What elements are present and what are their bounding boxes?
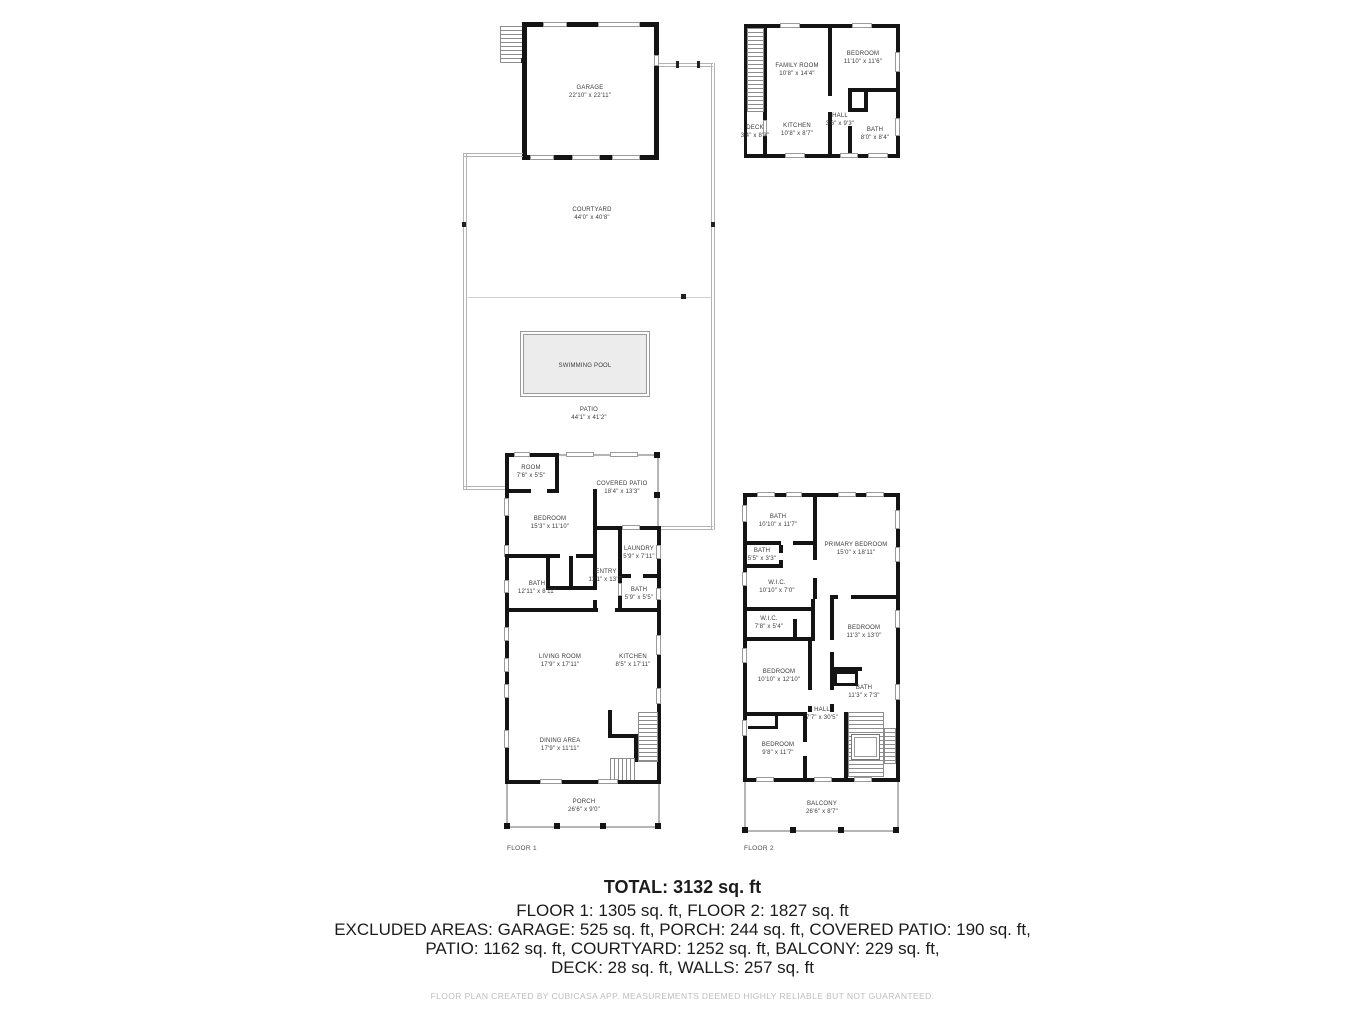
window (504, 730, 509, 748)
room-label-swimming-pool: SWIMMING POOL (559, 362, 612, 370)
room-label-wic: W.I.C. 10'10" x 7'0" (759, 579, 795, 595)
room-dims: 22'10" x 22'11" (569, 92, 611, 100)
disclaimer-text: FLOOR PLAN CREATED BY CUBICASA APP. MEAS… (0, 991, 1365, 1001)
room-dims: 18'4" x 13'3" (596, 488, 647, 496)
room-name: W.I.C. (755, 615, 783, 623)
room-dims: 3'4" x 8'3" (741, 132, 769, 140)
room-name: BEDROOM (762, 741, 794, 749)
wall (744, 24, 900, 28)
room-name: HALL (806, 706, 838, 714)
room-label-courtyard: COURTYARD 44'0" x 40'8" (572, 206, 611, 222)
room-dims: 15'3" x 11'10" (531, 523, 570, 531)
window (742, 505, 747, 522)
room-label-bath: BATH 8'0" x 8'4" (861, 126, 889, 142)
gate-mark (676, 61, 679, 68)
wall (743, 564, 783, 568)
window (895, 510, 900, 529)
gate-mark (711, 222, 715, 227)
window (895, 610, 900, 628)
room-dims: 5'9" x 5'5" (625, 594, 653, 602)
door-opening (598, 779, 618, 784)
patio-boundary (711, 63, 715, 530)
window (598, 22, 640, 27)
room-dims: 11'3" x 7'3" (848, 692, 880, 700)
window (622, 525, 640, 530)
room-name: BATH (848, 684, 880, 692)
post (654, 452, 660, 458)
room-label-family-room: FAMILY ROOM 10'8" x 14'4" (775, 62, 818, 78)
window (868, 153, 888, 158)
wall (896, 493, 900, 782)
stairs (884, 728, 896, 764)
room-name: BEDROOM (531, 515, 570, 523)
gate-mark (681, 294, 686, 299)
room-name: BEDROOM (758, 668, 801, 676)
window (504, 684, 509, 698)
courtyard-boundary (463, 153, 467, 490)
wall (779, 560, 783, 568)
room-label-balcony: BALCONY 26'6" x 8'7" (806, 800, 838, 816)
post (600, 823, 606, 829)
room-label-bedroom: BEDROOM 11'10" x 11'6" (844, 50, 882, 66)
courtyard-boundary (463, 153, 523, 157)
window (656, 635, 661, 655)
patio-boundary (659, 63, 713, 67)
floor1-tag: FLOOR 1 (507, 845, 537, 852)
room-dims: 17'9" x 11'11" (540, 745, 581, 753)
room-name: BATH (518, 580, 556, 588)
post (742, 827, 748, 833)
window (514, 452, 530, 457)
door-opening (618, 583, 622, 596)
courtyard-patio-divider (468, 297, 711, 298)
room-dims: 8'0" x 8'4" (861, 134, 889, 142)
room-name: PATIO (571, 406, 607, 414)
room-dims: 9'8" x 11'7" (762, 749, 794, 757)
wall (830, 595, 834, 640)
window (866, 492, 884, 497)
room-label-covered-patio: COVERED PATIO 18'4" x 13'3" (596, 480, 647, 496)
wall (547, 489, 559, 493)
room-label-bath: BATH 12'11" x 8'11" (518, 580, 556, 596)
porch-edge (506, 784, 508, 828)
room-name: BEDROOM (844, 50, 882, 58)
window (612, 155, 640, 160)
wall (743, 637, 811, 641)
stairs (747, 28, 764, 112)
wall (743, 541, 781, 545)
room-label-garage: GARAGE 22'10" x 22'11" (569, 84, 611, 100)
room-name: LIVING ROOM (539, 653, 581, 661)
floor2-tag: FLOOR 2 (744, 845, 774, 852)
room-label-deck: DECK 3'4" x 8'3" (741, 124, 769, 140)
room-name: FAMILY ROOM (775, 62, 818, 70)
window (742, 720, 747, 736)
excluded-areas-text-3: DECK: 28 sq. ft, WALLS: 257 sq. ft (0, 958, 1365, 977)
room-dims: 11'10" x 11'6" (844, 58, 882, 66)
window (780, 23, 800, 28)
room-label-dining-area: DINING AREA 17'9" x 11'11" (540, 737, 581, 753)
window (610, 452, 638, 457)
patio-boundary (659, 526, 713, 530)
wall (569, 556, 573, 590)
wall (793, 619, 797, 639)
wall (505, 608, 598, 612)
room-name: W.I.C. (759, 579, 795, 587)
room-label-bedroom: BEDROOM 15'3" x 11'10" (531, 515, 570, 531)
wall (615, 608, 661, 612)
window (656, 688, 661, 704)
room-label-bath-2: BATH 5'9" x 5'5" (625, 586, 653, 602)
post (893, 827, 899, 833)
room-name: ENTRY (588, 568, 623, 576)
window (742, 648, 747, 663)
window (530, 155, 554, 160)
balcony-edge (897, 782, 899, 830)
wall (775, 714, 778, 728)
room-dims: 11'3" x 13'0" (846, 632, 881, 640)
wall (828, 26, 832, 96)
wall (830, 671, 834, 690)
room-name: LAUNDRY (623, 545, 655, 553)
window (504, 658, 509, 672)
room-label-porch: PORCH 26'6" x 9'0" (568, 798, 600, 814)
room-name: ROOM (517, 464, 545, 472)
room-dims: 10'10" x 7'0" (759, 587, 795, 595)
room-label-patio: PATIO 44'1" x 41'2" (571, 406, 607, 422)
total-area-text: TOTAL: 3132 sq. ft (0, 877, 1365, 897)
room-label-room: ROOM 7'6" x 5'5" (517, 464, 545, 480)
room-name: COURTYARD (572, 206, 611, 214)
window (838, 492, 856, 497)
room-dims: 44'0" x 40'8" (572, 214, 611, 222)
room-label-bath-right: BATH 11'3" x 7'3" (848, 684, 880, 700)
stairs (638, 712, 658, 762)
room-label-kitchen: KITCHEN 8'5" x 17'11" (615, 653, 650, 669)
room-name: HALL (826, 112, 854, 120)
wall (654, 22, 659, 160)
window (504, 580, 509, 593)
post (504, 823, 510, 829)
wall (803, 756, 807, 782)
window (504, 627, 509, 641)
room-name: SWIMMING POOL (559, 362, 612, 370)
wall (505, 780, 661, 784)
room-dims: 3'6" x 9'3" (826, 120, 854, 128)
room-label-hall: HALL 3'6" x 9'3" (826, 112, 854, 128)
gate-mark (462, 222, 466, 227)
window (543, 22, 567, 27)
room-label-kitchen: KITCHEN 10'8" x 8'7" (781, 122, 813, 138)
window (572, 155, 600, 160)
post (654, 492, 660, 498)
wall (522, 22, 527, 160)
room-name: GARAGE (569, 84, 611, 92)
room-label-hall: HALL 7'7" x 30'5" (806, 706, 838, 722)
gate-mark (697, 61, 700, 68)
room-dims: 17'9" x 17'11" (539, 661, 581, 669)
room-name: PRIMARY BEDROOM (825, 541, 888, 549)
room-dims: 10'10" x 11'7" (759, 521, 798, 529)
wall (813, 497, 817, 560)
post (655, 823, 661, 829)
post (838, 827, 844, 833)
floor-plan-page: GARAGE 22'10" x 22'11" FAMILY ROOM 10'8"… (0, 0, 1365, 1024)
window (895, 52, 900, 72)
window (785, 153, 805, 158)
wall (555, 453, 559, 493)
floor-areas-text: FLOOR 1: 1305 sq. ft, FLOOR 2: 1827 sq. … (0, 901, 1365, 920)
window (895, 547, 900, 562)
porch-edge (506, 826, 660, 828)
window (504, 498, 509, 516)
wall (813, 578, 817, 599)
door-opening (756, 777, 774, 782)
porch-edge (658, 784, 660, 828)
room-name: DINING AREA (540, 737, 581, 745)
door-opening (854, 777, 872, 782)
room-label-wic-2: W.I.C. 7'8" x 5'4" (755, 615, 783, 631)
room-name: KITCHEN (615, 653, 650, 661)
room-label-bedroom-bottom: BEDROOM 9'8" x 11'7" (762, 741, 794, 757)
window (656, 588, 661, 600)
room-dims: 10'8" x 8'7" (781, 130, 813, 138)
room-dims: 5'5" x 3'3" (748, 555, 776, 563)
room-label-bedroom-left: BEDROOM 10'10" x 12'10" (758, 668, 801, 684)
wall (505, 489, 531, 493)
wall (743, 607, 815, 611)
post (790, 827, 796, 833)
room-dims: 12'11" x 8'11" (518, 588, 556, 596)
room-dims: 44'1" x 41'2" (571, 414, 607, 422)
wall (808, 641, 812, 690)
room-dims: 8'5" x 17'11" (615, 661, 650, 669)
room-label-entry: ENTRY 11'1" x 13'7" (588, 568, 623, 584)
room-dims: 5'9" x 7'11" (623, 553, 655, 561)
room-label-laundry: LAUNDRY 5'9" x 7'11" (623, 545, 655, 561)
wall (643, 574, 661, 578)
room-dims: 15'0" x 18'11" (825, 549, 888, 557)
room-name: COVERED PATIO (596, 480, 647, 488)
wall (811, 599, 815, 641)
wall (748, 726, 778, 729)
window (895, 684, 900, 700)
room-name: BEDROOM (846, 624, 881, 632)
room-dims: 26'6" x 8'7" (806, 808, 838, 816)
room-dims: 26'6" x 9'0" (568, 806, 600, 814)
window (566, 452, 594, 457)
room-label-living-room: LIVING ROOM 17'9" x 17'11" (539, 653, 581, 669)
excluded-areas-text: EXCLUDED AREAS: GARAGE: 525 sq. ft, PORC… (0, 920, 1365, 939)
room-label-bath-small: BATH 5'5" x 3'3" (748, 547, 776, 563)
window (786, 492, 802, 497)
wall (793, 541, 815, 545)
window (840, 153, 858, 158)
room-name: BATH (861, 126, 889, 134)
room-name: BATH (748, 547, 776, 555)
wall (505, 554, 560, 558)
room-name: BALCONY (806, 800, 838, 808)
wall (779, 545, 783, 553)
post (554, 823, 560, 829)
courtyard-boundary (463, 486, 507, 490)
stair-landing (851, 734, 880, 760)
balcony-edge (744, 830, 899, 832)
window (852, 23, 872, 28)
room-dims: 11'1" x 13'7" (588, 576, 623, 584)
window (895, 118, 900, 136)
room-label-primary-bedroom: PRIMARY BEDROOM 15'0" x 18'11" (825, 541, 888, 557)
room-dims: 10'8" x 14'4" (775, 70, 818, 78)
room-name: KITCHEN (781, 122, 813, 130)
balcony-edge (744, 782, 746, 830)
window (757, 492, 775, 497)
door-opening (814, 777, 832, 782)
room-label-bedroom-right: BEDROOM 11'3" x 13'0" (846, 624, 881, 640)
room-name: BATH (759, 513, 798, 521)
window (656, 545, 661, 559)
room-name: PORCH (568, 798, 600, 806)
excluded-areas-text-2: PATIO: 1162 sq. ft, COURTYARD: 1252 sq. … (0, 939, 1365, 958)
window (540, 779, 562, 784)
window (742, 572, 747, 586)
room-dims: 7'6" x 5'5" (517, 472, 545, 480)
room-name: BATH (625, 586, 653, 594)
room-dims: 7'7" x 30'5" (806, 714, 838, 722)
room-dims: 7'8" x 5'4" (755, 623, 783, 631)
wall (851, 595, 900, 599)
wall (848, 88, 900, 92)
room-dims: 10'10" x 12'10" (758, 676, 801, 684)
room-name: DECK (741, 124, 769, 132)
room-label-bath: BATH 10'10" x 11'7" (759, 513, 798, 529)
